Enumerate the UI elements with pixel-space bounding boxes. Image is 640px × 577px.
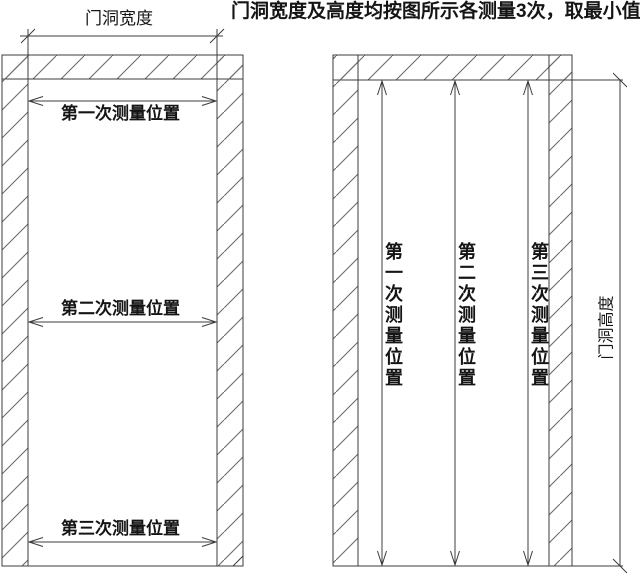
width-measure-arrow-3 [29, 538, 216, 547]
right-diagram-right-wall-hatch [549, 55, 572, 566]
height-dimension-label: 门洞高度 [599, 292, 616, 364]
width-measurement-2-label: 第二次测量位置 [61, 299, 180, 319]
width-measurement-3-label: 第三次测量位置 [61, 519, 180, 539]
height-measurement-2-label: 第二次测量位置 [457, 242, 475, 389]
left-diagram-left-wall-hatch [2, 55, 28, 566]
height-measurement-3-label: 第三次测量位置 [530, 242, 548, 389]
left-diagram-right-wall-hatch [217, 55, 243, 566]
width-measurement-1-label: 第一次测量位置 [61, 104, 180, 124]
left-diagram-top-wall-hatch [2, 55, 243, 79]
height-measurement-1-label: 第一次测量位置 [384, 242, 402, 389]
right-diagram-left-wall-hatch [333, 55, 358, 566]
width-measure-arrow-2 [29, 318, 216, 327]
right-diagram-top-wall-hatch [333, 55, 572, 80]
door-measurement-figure: 门洞宽度及高度均按图所示各测量3次，取最小值 门洞宽度 第一次测量位置 第二次测… [0, 0, 640, 577]
right-door-diagram [333, 55, 627, 573]
width-dimension-label: 门洞宽度 [85, 9, 153, 29]
figure-title: 门洞宽度及高度均按图所示各测量3次，取最小值 [231, 1, 640, 23]
